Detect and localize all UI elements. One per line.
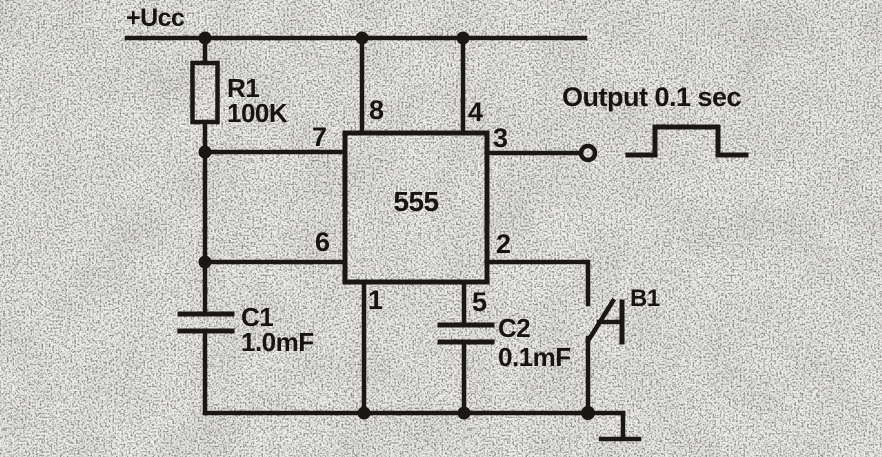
button-designator-label: B1 bbox=[630, 285, 660, 312]
junction-dot bbox=[581, 406, 595, 420]
pin-5-label: 5 bbox=[472, 287, 487, 317]
resistor-value-label: 100K bbox=[227, 98, 288, 128]
pin-8-label: 8 bbox=[369, 95, 384, 125]
pin-4-label: 4 bbox=[468, 97, 483, 127]
pin-2-label: 2 bbox=[496, 229, 511, 259]
c1-value-label: 1.0mF bbox=[241, 327, 314, 357]
pin-3-label: 3 bbox=[493, 123, 508, 153]
c2-value-label: 0.1mF bbox=[498, 342, 571, 372]
pin-1-label: 1 bbox=[368, 285, 383, 315]
output-label: Output 0.1 sec bbox=[562, 82, 742, 112]
junction-dot bbox=[358, 407, 371, 420]
junction-dot bbox=[199, 256, 212, 269]
scan-speckle-texture bbox=[0, 0, 882, 457]
power-label: +Ucc bbox=[126, 4, 185, 32]
schematic-scan-page: +Ucc R1 100K 7 8 4 3 6 2 1 5 555 Output … bbox=[0, 0, 882, 457]
pin-6-label: 6 bbox=[315, 227, 330, 257]
circuit-schematic-555-monostable: +Ucc R1 100K 7 8 4 3 6 2 1 5 555 Output … bbox=[0, 0, 882, 457]
pin-7-label: 7 bbox=[312, 122, 327, 152]
junction-dot bbox=[458, 407, 471, 420]
junction-dot bbox=[199, 146, 212, 159]
c2-designator-label: C2 bbox=[498, 313, 530, 343]
ic-part-number-label: 555 bbox=[393, 186, 438, 217]
